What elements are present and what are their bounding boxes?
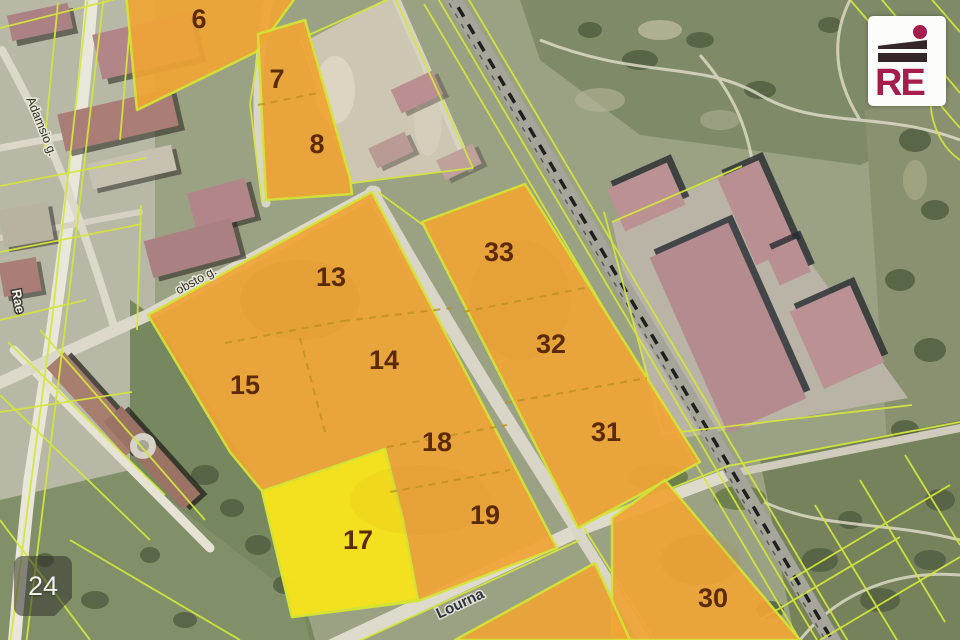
parcel-number-15: 15 [230, 370, 260, 400]
parcel-number-7: 7 [269, 64, 284, 94]
parcel-number-30: 30 [698, 583, 728, 613]
logo-bar-icon [878, 53, 927, 62]
map-viewport[interactable]: Adamsio g. Rae obsto g. Lourna 6 7 8 13 … [0, 0, 960, 640]
parcel-number-6: 6 [191, 4, 206, 34]
logo-dot-icon [913, 25, 927, 39]
parcel-number-31: 31 [591, 417, 621, 447]
logo-bar-icon [878, 40, 927, 49]
satellite-map[interactable]: Adamsio g. Rae obsto g. Lourna 6 7 8 13 … [0, 0, 960, 640]
parcel-number-17: 17 [343, 525, 373, 555]
logo-text: RE [875, 64, 941, 102]
parcel-number-13: 13 [316, 262, 346, 292]
parcel-number-33: 33 [484, 237, 514, 267]
parcel-number-14: 14 [369, 345, 399, 375]
brand-logo[interactable]: RE [868, 16, 946, 106]
parcel-number-32: 32 [536, 329, 566, 359]
parcel-number-18: 18 [422, 427, 452, 457]
parcel-number-8: 8 [309, 129, 324, 159]
parcel-number-19: 19 [470, 500, 500, 530]
photo-count-badge[interactable]: 24 [14, 556, 72, 616]
